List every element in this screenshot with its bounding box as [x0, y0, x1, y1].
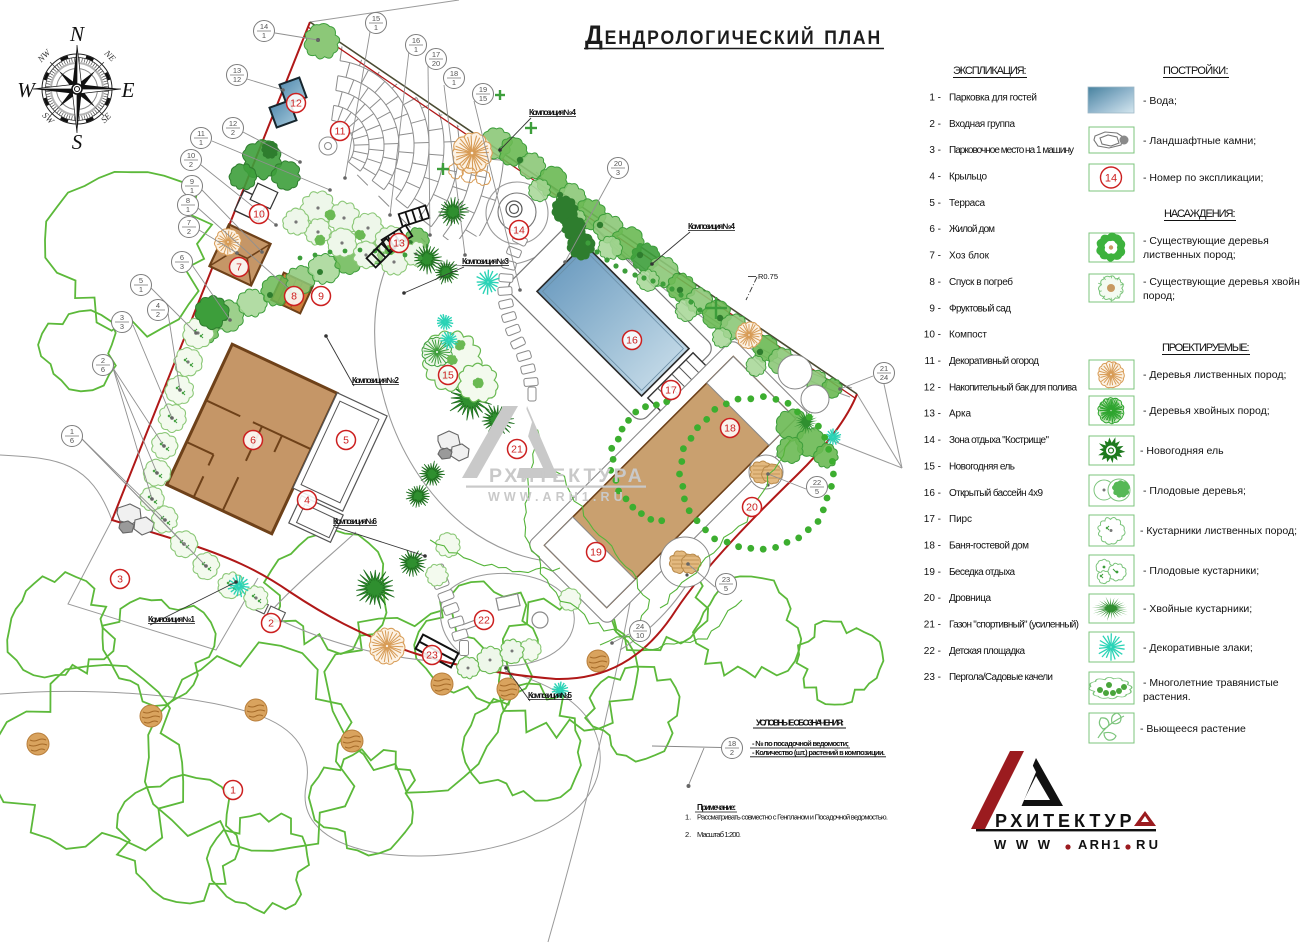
- svg-text:Газон "спортивный" (усиленный): Газон "спортивный" (усиленный): [949, 620, 1079, 631]
- svg-text:12: 12: [233, 75, 241, 84]
- svg-text:2.: 2.: [685, 830, 691, 839]
- svg-text:18 -: 18 -: [924, 541, 941, 552]
- svg-text:RU: RU: [1136, 837, 1160, 852]
- svg-text:W: W: [17, 78, 37, 102]
- svg-text:Композиция № 2: Композиция № 2: [352, 376, 400, 385]
- svg-text:Входная группа: Входная группа: [949, 119, 1015, 130]
- svg-text:10: 10: [636, 631, 644, 640]
- svg-text:Дендрологический план: Дендрологический план: [585, 20, 882, 50]
- svg-text:WWW.ARH1.RU: WWW.ARH1.RU: [488, 490, 625, 504]
- svg-text:1: 1: [190, 186, 194, 195]
- svg-text:15: 15: [372, 14, 380, 23]
- svg-text:Дровница: Дровница: [949, 593, 991, 604]
- svg-text:- Деревья лиственных пород;: - Деревья лиственных пород;: [1143, 369, 1286, 381]
- svg-text:2 -: 2 -: [929, 119, 941, 130]
- svg-text:Крыльцо: Крыльцо: [949, 172, 987, 183]
- svg-text:2: 2: [187, 227, 191, 236]
- svg-text:Баня-гостевой дом: Баня-гостевой дом: [949, 541, 1029, 552]
- svg-text:19: 19: [479, 85, 487, 94]
- svg-text:1: 1: [139, 285, 143, 294]
- svg-text:9: 9: [190, 177, 194, 186]
- svg-text:22: 22: [478, 615, 490, 627]
- svg-text:10: 10: [187, 151, 195, 160]
- svg-text:3: 3: [120, 313, 124, 322]
- svg-text:14: 14: [513, 225, 525, 237]
- svg-text:- Плодовые кустарники;: - Плодовые кустарники;: [1143, 565, 1259, 577]
- svg-text:1: 1: [70, 427, 74, 436]
- svg-text:РХИТЕКТУР: РХИТЕКТУР: [995, 811, 1133, 831]
- svg-text:ПОСТРОЙКИ:: ПОСТРОЙКИ:: [1163, 64, 1229, 77]
- svg-text:ПРОЕКТИРУЕМЫЕ:: ПРОЕКТИРУЕМЫЕ:: [1162, 342, 1250, 354]
- svg-text:4 -: 4 -: [929, 172, 941, 183]
- svg-text:- Деревья хвойных пород;: - Деревья хвойных пород;: [1143, 405, 1270, 417]
- svg-text:3: 3: [616, 168, 620, 177]
- svg-text:20: 20: [746, 502, 758, 514]
- svg-text:5: 5: [139, 276, 143, 285]
- svg-text:WWW: WWW: [994, 837, 1052, 852]
- svg-text:Открытый бассейн 4х9: Открытый бассейн 4х9: [949, 487, 1043, 499]
- svg-text:- Вода;: - Вода;: [1143, 95, 1177, 107]
- svg-text:17: 17: [432, 50, 440, 59]
- svg-text:9 -: 9 -: [929, 303, 941, 314]
- svg-text:Терраса: Терраса: [949, 198, 985, 209]
- svg-text:Новогодняя ель: Новогодняя ель: [949, 461, 1015, 472]
- svg-text:1.: 1.: [685, 813, 691, 822]
- svg-text:4: 4: [156, 301, 160, 310]
- svg-text:6: 6: [250, 435, 256, 447]
- svg-text:6: 6: [180, 253, 184, 262]
- svg-text:21: 21: [880, 364, 888, 373]
- svg-text:10 -: 10 -: [924, 330, 941, 341]
- svg-text:2: 2: [730, 748, 734, 757]
- svg-text:1: 1: [452, 78, 456, 87]
- svg-text:2: 2: [156, 310, 160, 319]
- svg-text:18: 18: [728, 739, 736, 748]
- svg-text:14 -: 14 -: [924, 435, 941, 446]
- svg-text:9: 9: [318, 291, 324, 303]
- svg-text:- Количество (шт.) растений в: - Количество (шт.) растений в композиции…: [752, 748, 885, 757]
- svg-text:15: 15: [479, 94, 487, 103]
- svg-text:16: 16: [412, 36, 420, 45]
- svg-text:20: 20: [432, 59, 440, 68]
- svg-text:S: S: [72, 130, 83, 154]
- svg-text:5: 5: [815, 487, 819, 496]
- svg-text:16 -: 16 -: [924, 488, 941, 499]
- svg-text:- Существующие деревья хвойн: - Существующие деревья хвойных: [1143, 276, 1300, 288]
- svg-text:Пергола/Садовые качели: Пергола/Садовые качели: [949, 672, 1053, 683]
- svg-text:21: 21: [511, 444, 523, 456]
- svg-text:18: 18: [724, 423, 736, 435]
- svg-text:14: 14: [1105, 173, 1117, 185]
- svg-text:16: 16: [626, 335, 638, 347]
- svg-text:N: N: [69, 22, 85, 46]
- svg-text:Композиция № 4: Композиция № 4: [529, 108, 577, 117]
- svg-text:20 -: 20 -: [924, 593, 941, 604]
- svg-text:5: 5: [343, 435, 349, 447]
- svg-text:- Существующие деревья: - Существующие деревья: [1143, 235, 1269, 247]
- svg-text:10: 10: [253, 209, 265, 221]
- svg-text:2: 2: [189, 160, 193, 169]
- svg-text:пород;: пород;: [1143, 290, 1175, 302]
- svg-text:23: 23: [722, 575, 730, 584]
- svg-text:лиственных пород;: лиственных пород;: [1143, 249, 1236, 261]
- svg-text:Декоративный огород: Декоративный огород: [949, 356, 1039, 367]
- svg-text:24: 24: [880, 373, 888, 382]
- svg-text:23 -: 23 -: [924, 672, 941, 683]
- svg-text:Зона отдыха "Кострище": Зона отдыха "Кострище": [949, 435, 1049, 446]
- svg-text:19: 19: [590, 547, 602, 559]
- svg-text:8: 8: [291, 291, 297, 303]
- svg-text:21 -: 21 -: [924, 620, 941, 631]
- svg-text:15: 15: [442, 370, 454, 382]
- svg-text:Композиция №6: Композиция №6: [333, 517, 378, 526]
- svg-text:Примечание:: Примечание:: [697, 803, 736, 812]
- svg-text:18: 18: [450, 69, 458, 78]
- svg-text:12: 12: [229, 119, 237, 128]
- svg-text:Накопительный бак для полива: Накопительный бак для полива: [949, 381, 1077, 393]
- svg-text:5: 5: [724, 584, 728, 593]
- svg-text:17 -: 17 -: [924, 514, 941, 525]
- svg-text:1: 1: [374, 23, 378, 32]
- svg-text:23: 23: [426, 650, 438, 662]
- svg-text:3: 3: [120, 322, 124, 331]
- svg-text:11 -: 11 -: [925, 356, 942, 367]
- svg-text:8: 8: [186, 196, 190, 205]
- svg-text:Парковка для гостей: Парковка для гостей: [949, 93, 1037, 104]
- svg-text:Композиция № 1: Композиция № 1: [148, 615, 196, 624]
- svg-text:11: 11: [335, 126, 346, 138]
- svg-text:- Новогодняя ель: - Новогодняя ель: [1140, 445, 1224, 457]
- svg-text:2: 2: [101, 356, 105, 365]
- svg-text:14: 14: [260, 22, 268, 31]
- svg-text:Парковочное место на 1 машину: Парковочное место на 1 машину: [949, 145, 1074, 156]
- svg-text:24: 24: [636, 622, 644, 631]
- svg-text:19 -: 19 -: [924, 567, 941, 578]
- svg-text:Пирс: Пирс: [949, 514, 972, 525]
- svg-text:Рассматривать совместно с Генп: Рассматривать совместно с Генпланом и По…: [697, 813, 888, 822]
- svg-text:6 -: 6 -: [929, 224, 941, 235]
- svg-text:УСЛОВНЫЕ ОБОЗНАЧЕНИЯ:: УСЛОВНЫЕ ОБОЗНАЧЕНИЯ:: [756, 718, 844, 728]
- svg-text:22: 22: [813, 478, 821, 487]
- svg-text:- Хвойные кустарники;: - Хвойные кустарники;: [1143, 603, 1252, 615]
- svg-text:1: 1: [230, 785, 236, 797]
- svg-text:- Кустарники лиственных пород;: - Кустарники лиственных пород;: [1140, 525, 1297, 537]
- svg-text:ЭКСПЛИКАЦИЯ:: ЭКСПЛИКАЦИЯ:: [953, 65, 1027, 77]
- svg-text:Арка: Арка: [949, 409, 971, 420]
- svg-text:22 -: 22 -: [924, 646, 941, 657]
- svg-text:3 -: 3 -: [929, 145, 941, 156]
- svg-text:3: 3: [180, 262, 184, 271]
- svg-text:6: 6: [70, 436, 74, 445]
- svg-text:1: 1: [186, 205, 190, 214]
- svg-text:6: 6: [101, 365, 105, 374]
- svg-text:E: E: [121, 78, 135, 102]
- svg-text:Компост: Компост: [949, 330, 987, 341]
- svg-text:- Номер по экспликации;: - Номер по экспликации;: [1143, 172, 1263, 184]
- svg-text:Фруктовый сад: Фруктовый сад: [949, 303, 1011, 314]
- svg-text:1: 1: [199, 138, 203, 147]
- svg-text:8 -: 8 -: [929, 277, 941, 288]
- svg-text:Композиция № 3: Композиция № 3: [462, 257, 510, 266]
- svg-text:7 -: 7 -: [929, 251, 941, 262]
- svg-text:4: 4: [304, 495, 310, 507]
- svg-text:1 -: 1 -: [929, 93, 941, 104]
- svg-text:11: 11: [197, 129, 205, 138]
- svg-text:2: 2: [231, 128, 235, 137]
- svg-text:1: 1: [414, 45, 418, 54]
- svg-text:- Вьющееся растение: - Вьющееся растение: [1140, 723, 1246, 735]
- svg-text:- Многолетние травянистые: - Многолетние травянистые: [1143, 677, 1279, 689]
- svg-text:15 -: 15 -: [924, 461, 941, 472]
- svg-text:растения.: растения.: [1143, 691, 1191, 703]
- svg-text:Композиция №5: Композиция №5: [528, 691, 573, 700]
- svg-text:Детская площадка: Детская площадка: [949, 646, 1025, 657]
- svg-text:РХИТЕКТУРА: РХИТЕКТУРА: [489, 465, 645, 487]
- svg-text:- Декоративные злаки;: - Декоративные злаки;: [1143, 642, 1253, 654]
- svg-text:17: 17: [665, 385, 677, 397]
- svg-text:- Ландшафтные камни;: - Ландшафтные камни;: [1143, 135, 1256, 147]
- svg-text:- Плодовые деревья;: - Плодовые деревья;: [1143, 485, 1246, 497]
- svg-text:ARH1: ARH1: [1078, 837, 1122, 852]
- svg-text:5 -: 5 -: [929, 198, 941, 209]
- svg-text:12 -: 12 -: [924, 382, 941, 393]
- svg-text:2: 2: [268, 618, 274, 630]
- svg-text:3: 3: [117, 574, 123, 586]
- svg-text:12: 12: [290, 98, 302, 110]
- svg-text:Хоз блок: Хоз блок: [949, 250, 990, 262]
- svg-text:7: 7: [236, 262, 242, 274]
- svg-text:1: 1: [262, 31, 266, 40]
- svg-text:R0.75: R0.75: [758, 272, 778, 281]
- svg-text:13 -: 13 -: [924, 409, 941, 420]
- svg-text:Жилой дом: Жилой дом: [949, 224, 995, 235]
- svg-text:Спуск в погреб: Спуск в погреб: [949, 276, 1013, 288]
- svg-text:13: 13: [393, 238, 405, 250]
- svg-text:НАСАЖДЕНИЯ:: НАСАЖДЕНИЯ:: [1164, 208, 1236, 220]
- svg-text:Беседка отдыха: Беседка отдыха: [949, 567, 1015, 578]
- svg-text:20: 20: [614, 159, 622, 168]
- svg-text:- № по посадочной ведомости;: - № по посадочной ведомости;: [752, 739, 849, 748]
- svg-text:Композиция № 4: Композиция № 4: [688, 222, 736, 231]
- svg-text:Масштаб 1:200.: Масштаб 1:200.: [697, 830, 741, 839]
- svg-text:7: 7: [187, 218, 191, 227]
- svg-text:13: 13: [233, 66, 241, 75]
